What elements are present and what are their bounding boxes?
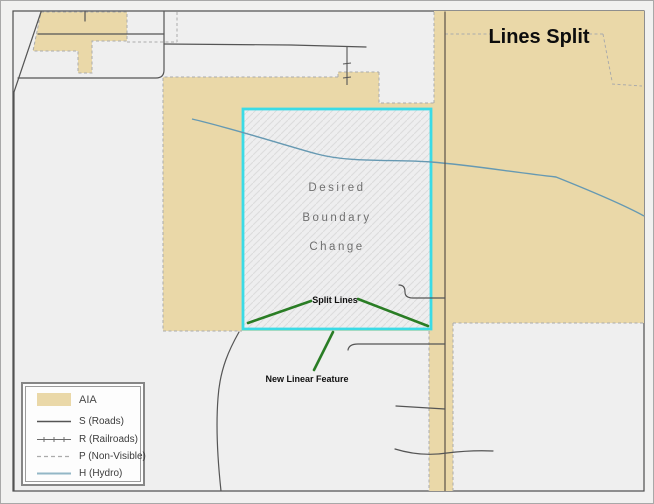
legend-row-hydro: H (Hydro) bbox=[36, 466, 122, 481]
road-line-swatch bbox=[36, 414, 72, 429]
map-document: Lines Split Desired Boundary Change Spli… bbox=[0, 0, 654, 504]
legend-label-railroads: R (Railroads) bbox=[79, 434, 138, 445]
legend-label-aia: AIA bbox=[79, 394, 97, 406]
legend-label-roads: S (Roads) bbox=[79, 416, 124, 427]
map-title: Lines Split bbox=[488, 26, 589, 48]
boundary-label-line1: Desired bbox=[308, 182, 365, 194]
aia-fill-swatch bbox=[36, 392, 72, 407]
legend-row-nonvisible: P (Non-Visible) bbox=[36, 449, 146, 464]
split-lines-label: Split Lines bbox=[312, 295, 358, 305]
dashed-line-swatch bbox=[36, 449, 72, 464]
boundary-label-line2: Boundary bbox=[302, 212, 371, 224]
legend-label-hydro: H (Hydro) bbox=[79, 468, 122, 479]
notch-area bbox=[379, 72, 434, 103]
new-linear-feature-label: New Linear Feature bbox=[265, 374, 348, 384]
legend-row-roads: S (Roads) bbox=[36, 414, 124, 429]
aia-right-block-polygon bbox=[434, 11, 644, 323]
boundary-label-line3: Change bbox=[309, 241, 364, 253]
railroad-line-swatch bbox=[36, 432, 72, 447]
hydro-line-swatch bbox=[36, 466, 72, 481]
legend-row-aia: AIA bbox=[36, 392, 97, 407]
legend-box: AIA S (Roads) R (Railroads) P (Non-Visib… bbox=[21, 382, 145, 486]
aia-corridor-polygon bbox=[429, 323, 453, 491]
aia-swatch-rect bbox=[37, 393, 71, 406]
legend-label-nonvisible: P (Non-Visible) bbox=[79, 451, 146, 462]
legend-row-railroads: R (Railroads) bbox=[36, 432, 138, 447]
